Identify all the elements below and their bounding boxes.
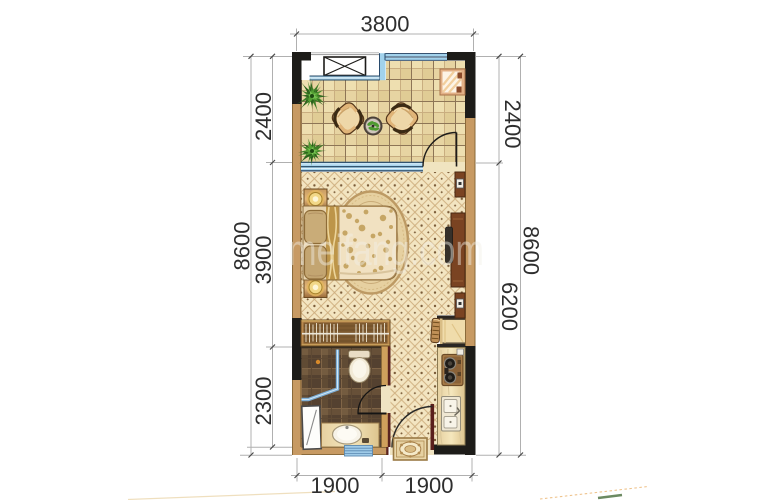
svg-text:3800: 3800 xyxy=(361,12,410,37)
svg-text:2400: 2400 xyxy=(500,100,525,149)
svg-text:meifang.com: meifang.com xyxy=(288,226,484,275)
svg-text:3900: 3900 xyxy=(251,236,276,285)
svg-text:6200: 6200 xyxy=(497,282,522,331)
svg-text:1900: 1900 xyxy=(311,473,360,498)
svg-text:2300: 2300 xyxy=(251,377,276,426)
svg-text:2400: 2400 xyxy=(251,92,276,141)
svg-text:8600: 8600 xyxy=(519,226,544,275)
svg-text:8600: 8600 xyxy=(229,222,254,271)
svg-text:1900: 1900 xyxy=(405,473,454,498)
